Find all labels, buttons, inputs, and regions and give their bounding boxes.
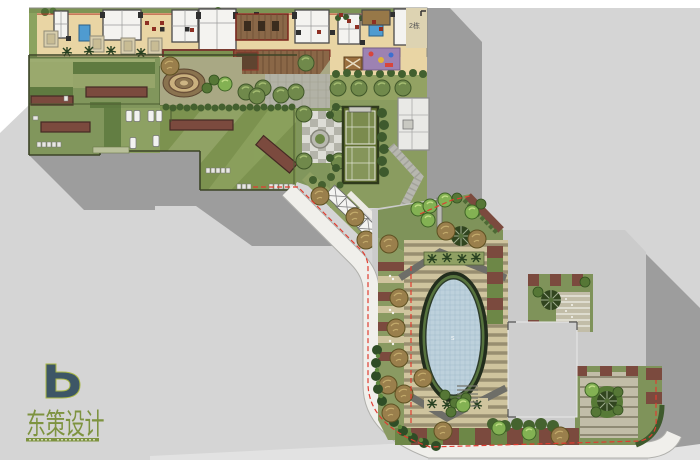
svg-text:东策设计: 东策设计 xyxy=(26,408,104,441)
svg-text:s: s xyxy=(451,335,455,342)
svg-text:2栋: 2栋 xyxy=(409,21,420,30)
